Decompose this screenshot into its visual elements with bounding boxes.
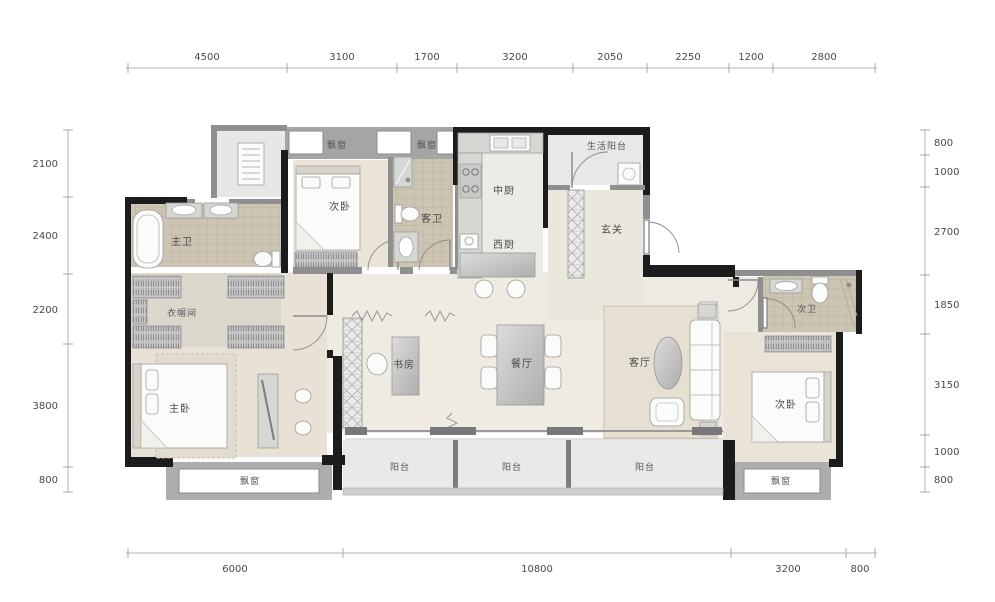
label-bedroom-top: 次卧 [329,200,351,213]
dim-right-4: 3150 [934,380,959,391]
dim-bottom-0: 6000 [222,564,247,575]
label-living: 客厅 [629,356,651,369]
living-furniture [604,304,720,438]
label-kitchen-cn: 中厨 [493,184,515,197]
label-study: 书房 [393,358,415,371]
label-bay-window-top-1: 飘窗 [327,139,347,151]
dim-bottom-1: 10800 [521,564,553,575]
dim-top-2: 1700 [414,52,439,63]
floorplan-page: 飘窗 飘窗 次卧 客卫 中厨 生活阳台 玄关 西厨 主卫 衣帽间 主卧 书房 餐… [0,0,995,602]
dim-top-4: 2050 [597,52,622,63]
label-foyer: 玄关 [601,223,623,236]
dim-bottom-2: 3200 [775,564,800,575]
dim-top-7: 2800 [811,52,836,63]
label-bay-window-left: 飘窗 [240,475,260,487]
dim-right-6: 800 [934,475,953,486]
label-cloakroom: 衣帽间 [167,307,197,319]
dimension-top: 4500 3100 1700 3200 2050 2250 1200 2800 [126,52,877,73]
label-master-bath: 主卫 [171,236,193,248]
dim-right-1: 1000 [934,167,959,178]
label-bay-window-top-2: 飘窗 [417,139,437,151]
label-second-bath: 次卫 [797,303,817,315]
label-balcony-1: 阳台 [390,461,410,473]
label-bay-window-right: 飘窗 [771,475,791,487]
label-service-balcony: 生活阳台 [587,140,627,152]
dim-right-0: 800 [934,138,953,149]
dim-right-2: 2700 [934,227,959,238]
floorplan-svg: 飘窗 飘窗 次卧 客卫 中厨 生活阳台 玄关 西厨 主卫 衣帽间 主卧 书房 餐… [0,0,995,602]
label-bedroom-right: 次卧 [775,398,797,411]
dimension-right: 800 1000 2700 1850 3150 1000 800 [920,130,959,492]
dim-top-6: 1200 [738,52,763,63]
label-kitchen-west: 西厨 [493,239,515,251]
label-dining: 餐厅 [511,357,533,370]
dim-right-5: 1000 [934,447,959,458]
dim-left-1: 2400 [33,231,58,242]
dim-left-0: 2100 [33,159,58,170]
label-guest-bath: 客卫 [421,212,443,225]
dim-left-3: 3800 [33,401,58,412]
label-balcony-2: 阳台 [502,461,522,473]
dim-top-1: 3100 [329,52,354,63]
dim-top-5: 2250 [675,52,700,63]
dim-left-2: 2200 [33,305,58,316]
dim-right-3: 1850 [934,300,959,311]
label-master-bedroom: 主卧 [169,402,191,415]
label-balcony-3: 阳台 [635,461,655,473]
dimension-left: 2100 2400 2200 3800 800 [33,130,73,492]
utility-appliance [238,143,264,185]
dim-bottom-3: 800 [850,564,869,575]
dim-top-0: 4500 [194,52,219,63]
dimension-bottom: 6000 10800 3200 800 [126,548,877,575]
dim-left-4: 800 [39,475,58,486]
dim-top-3: 3200 [502,52,527,63]
